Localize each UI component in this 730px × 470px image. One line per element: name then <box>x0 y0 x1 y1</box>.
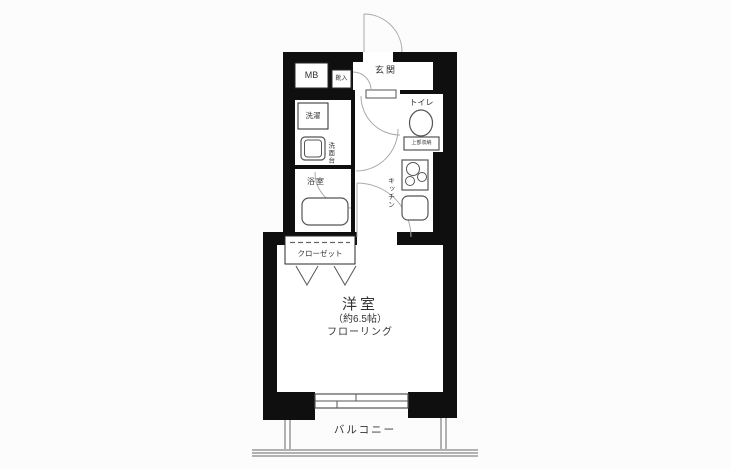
main-room-label: 洋室 <box>295 295 425 313</box>
main-room-size-label: （約6.5帖） <box>295 314 425 326</box>
entrance-label: 玄関 <box>360 63 412 77</box>
toilet-storage-label: 上部収納 <box>404 137 439 150</box>
toilet-label: トイレ <box>397 96 446 109</box>
washstand-label: 洗面台 <box>324 133 335 173</box>
stove-icon <box>402 160 428 190</box>
closet-label: クローゼット <box>285 247 355 260</box>
sliding-window-icon <box>315 394 408 408</box>
entrance-door-arc <box>364 14 402 52</box>
washstand-icon <box>301 137 325 160</box>
meter-box-label: MB <box>295 63 328 88</box>
bathtub-icon <box>302 198 348 225</box>
main-room-floor-label: フローリング <box>295 327 425 339</box>
floor-plan: MB 靴入 玄関 トイレ 上部収納 洗濯 洗面台 浴室 キッチン クローゼット … <box>0 0 730 470</box>
laundry-label: 洗濯 <box>298 103 328 129</box>
balcony-label: バルコニー <box>305 419 425 441</box>
bathroom-label: 浴室 <box>293 176 339 188</box>
kitchen-label: キッチン <box>385 167 397 219</box>
sink-icon <box>402 196 428 220</box>
shoe-cabinet-label: 靴入 <box>332 70 351 88</box>
balcony-railing <box>252 450 478 456</box>
